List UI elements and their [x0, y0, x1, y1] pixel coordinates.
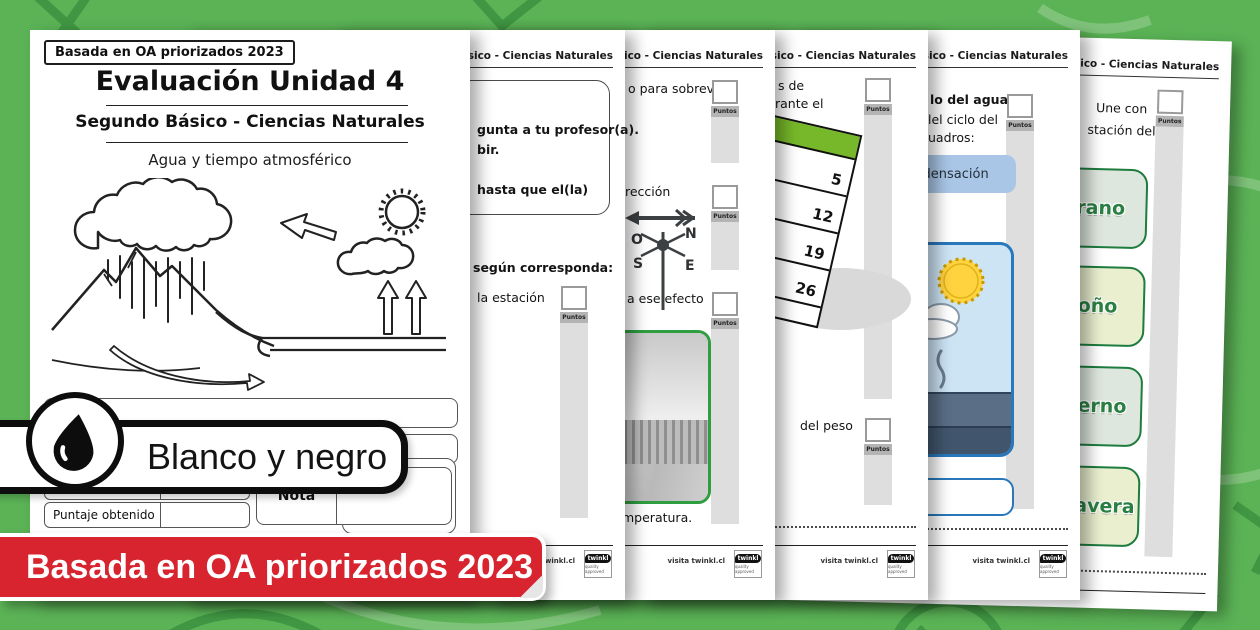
- condensation-arrow-icon: [281, 214, 336, 240]
- points-box: Puntos: [560, 286, 588, 518]
- twinkl-logo: twinkl quality approved: [734, 550, 762, 578]
- points-box: Puntos: [864, 78, 892, 399]
- evaporation-arrow-icon: [378, 281, 398, 334]
- sea-lines: [262, 338, 446, 350]
- obtained-score-row: Puntaje obtenido: [44, 502, 250, 528]
- twinkl-logo: twinkl quality approved: [1039, 550, 1067, 578]
- page5-text-fragment: uadros:: [928, 130, 975, 145]
- page3-text-fragment: a ese efecto: [627, 291, 704, 306]
- compass-north-label: N: [685, 226, 697, 242]
- worksheet-page-1-cover: Basada en OA priorizados 2023 Evaluación…: [30, 30, 470, 600]
- points-score-field: [865, 418, 891, 442]
- page-topic: Agua y tiempo atmosférico: [30, 151, 470, 169]
- bottom-ribbon-banner: Basada en OA priorizados 2023: [0, 533, 546, 601]
- evaporation-arrow-icon: [406, 281, 426, 334]
- points-score-field: [1157, 90, 1184, 115]
- page2-prompt-fragment: según corresponda:: [473, 260, 613, 275]
- page3-text-fragment: rección: [625, 184, 670, 199]
- runoff-arrow-icon: [110, 346, 264, 390]
- twinkl-logo: twinkl quality approved: [584, 550, 612, 578]
- twinkl-logo: twinkl quality approved: [887, 550, 915, 578]
- page6-text-fragment: Une con: [1096, 100, 1148, 116]
- page2-instruction-fragment: hasta que el(la): [477, 182, 588, 197]
- points-box: Puntos: [1144, 90, 1184, 558]
- points-score-field: [561, 286, 587, 310]
- points-score-field: [712, 185, 738, 209]
- ink-badge-circle: [26, 392, 124, 490]
- page2-item-fragment: la estación: [477, 290, 545, 305]
- page-title: Evaluación Unidad 4: [30, 66, 470, 97]
- points-score-field: [712, 292, 738, 316]
- page6-text-fragment: stación del: [1087, 122, 1155, 139]
- compass-east-label: E: [685, 258, 695, 274]
- points-score-field: [712, 80, 738, 104]
- sun-icon: [386, 196, 418, 228]
- page5-text-fragment: lel ciclo del: [928, 112, 998, 127]
- visit-link-text: visita twinkl.cl: [668, 557, 726, 565]
- page4-text-fragment: s de: [778, 78, 804, 93]
- oa-priorizados-badge: Basada en OA priorizados 2023: [44, 40, 295, 65]
- obtained-score-value-cell: [161, 503, 249, 527]
- ink-drop-icon: [46, 408, 104, 474]
- small-cloud-icon: [338, 239, 413, 275]
- page5-text-fragment: lo del agua.: [930, 92, 1013, 107]
- ribbon-label: Basada en OA priorizados 2023: [26, 548, 533, 587]
- compass-west-label: O: [631, 232, 643, 248]
- compass-south-label: S: [633, 256, 643, 272]
- page4-text-fragment: rante el: [775, 96, 823, 111]
- points-score-field: [865, 78, 891, 102]
- points-score-field: [1007, 94, 1033, 118]
- points-box: Puntos: [864, 418, 892, 505]
- visit-link-text: visita twinkl.cl: [821, 557, 879, 565]
- rain-cloud-icon: [75, 178, 231, 251]
- divider: [106, 142, 408, 143]
- points-box: Puntos: [711, 292, 739, 524]
- points-box: Puntos: [711, 80, 739, 163]
- page2-instruction-fragment: bir.: [477, 142, 499, 157]
- black-and-white-label: Blanco y negro: [147, 436, 387, 478]
- points-box: Puntos: [711, 185, 739, 270]
- divider: [106, 105, 408, 106]
- page3-text-fragment: mperatura.: [622, 510, 692, 525]
- water-cycle-line-drawing: [50, 178, 450, 396]
- page2-instruction-fragment: gunta a tu profesor(a).: [477, 122, 639, 137]
- page4-text-fragment: del peso: [800, 418, 853, 433]
- obtained-score-label: Puntaje obtenido: [45, 503, 161, 527]
- visit-link-text: visita twinkl.cl: [973, 557, 1031, 565]
- page-subtitle: Segundo Básico - Ciencias Naturales: [30, 112, 470, 132]
